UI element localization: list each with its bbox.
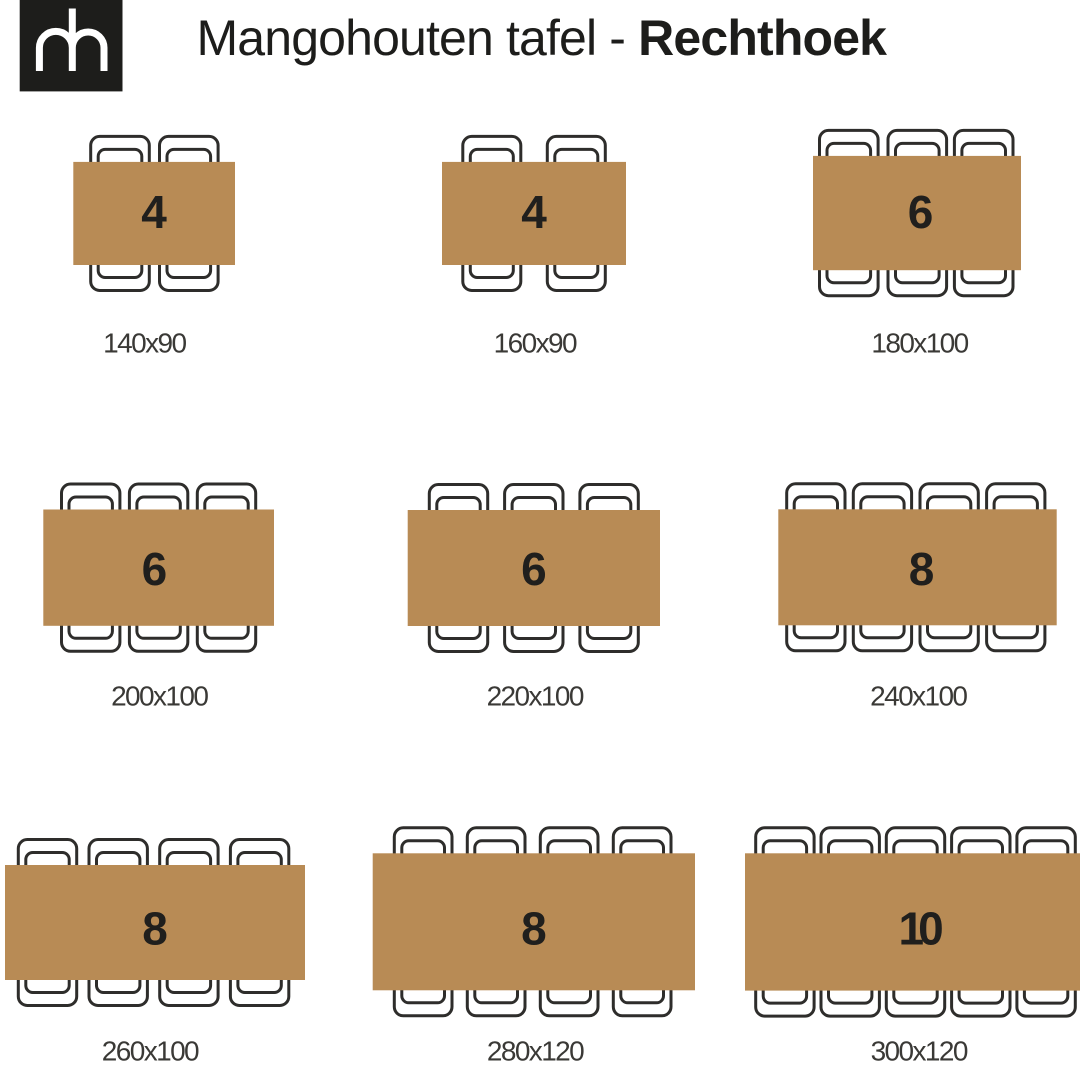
svg-text:8: 8 (521, 903, 547, 955)
svg-text:280x120: 280x120 (487, 1036, 584, 1067)
svg-text:160x90: 160x90 (494, 327, 577, 358)
svg-text:4: 4 (521, 186, 547, 238)
svg-text:6: 6 (908, 186, 934, 238)
svg-text:220x100: 220x100 (487, 680, 584, 711)
svg-text:8: 8 (909, 543, 935, 595)
svg-text:240x100: 240x100 (870, 680, 967, 711)
svg-text:180x100: 180x100 (871, 327, 968, 358)
svg-text:140x90: 140x90 (103, 327, 186, 358)
svg-text:300x120: 300x120 (871, 1036, 968, 1067)
svg-text:6: 6 (142, 543, 168, 595)
svg-text:Mangohouten tafel - Rechthoek: Mangohouten tafel - Rechthoek (197, 10, 888, 66)
svg-text:200x100: 200x100 (111, 680, 208, 711)
svg-text:10: 10 (899, 903, 943, 955)
svg-text:260x100: 260x100 (102, 1036, 199, 1067)
svg-text:8: 8 (142, 903, 168, 955)
svg-text:4: 4 (141, 186, 167, 238)
svg-text:6: 6 (521, 543, 547, 595)
